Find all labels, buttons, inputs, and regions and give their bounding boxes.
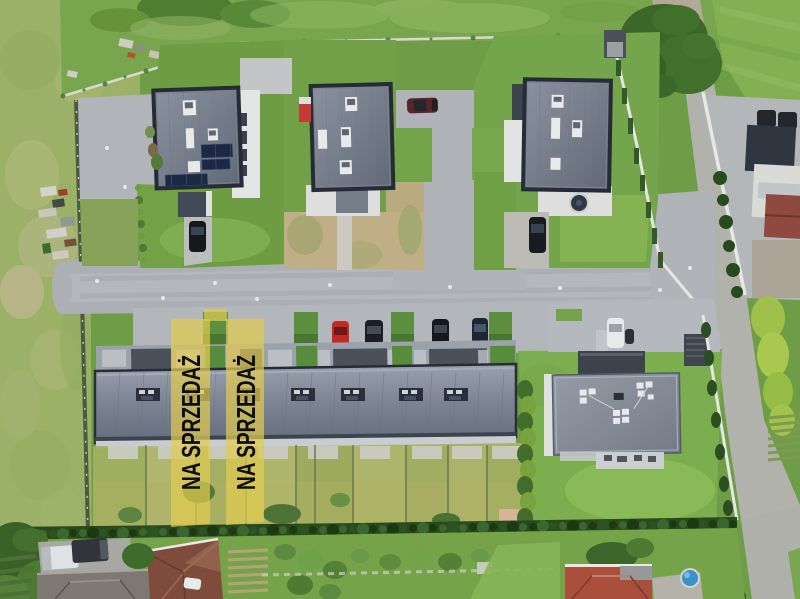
svg-text:NA SPRZEDAŻ: NA SPRZEDAŻ xyxy=(176,355,206,490)
svg-text:NA SPRZEDAŻ: NA SPRZEDAŻ xyxy=(231,355,261,490)
